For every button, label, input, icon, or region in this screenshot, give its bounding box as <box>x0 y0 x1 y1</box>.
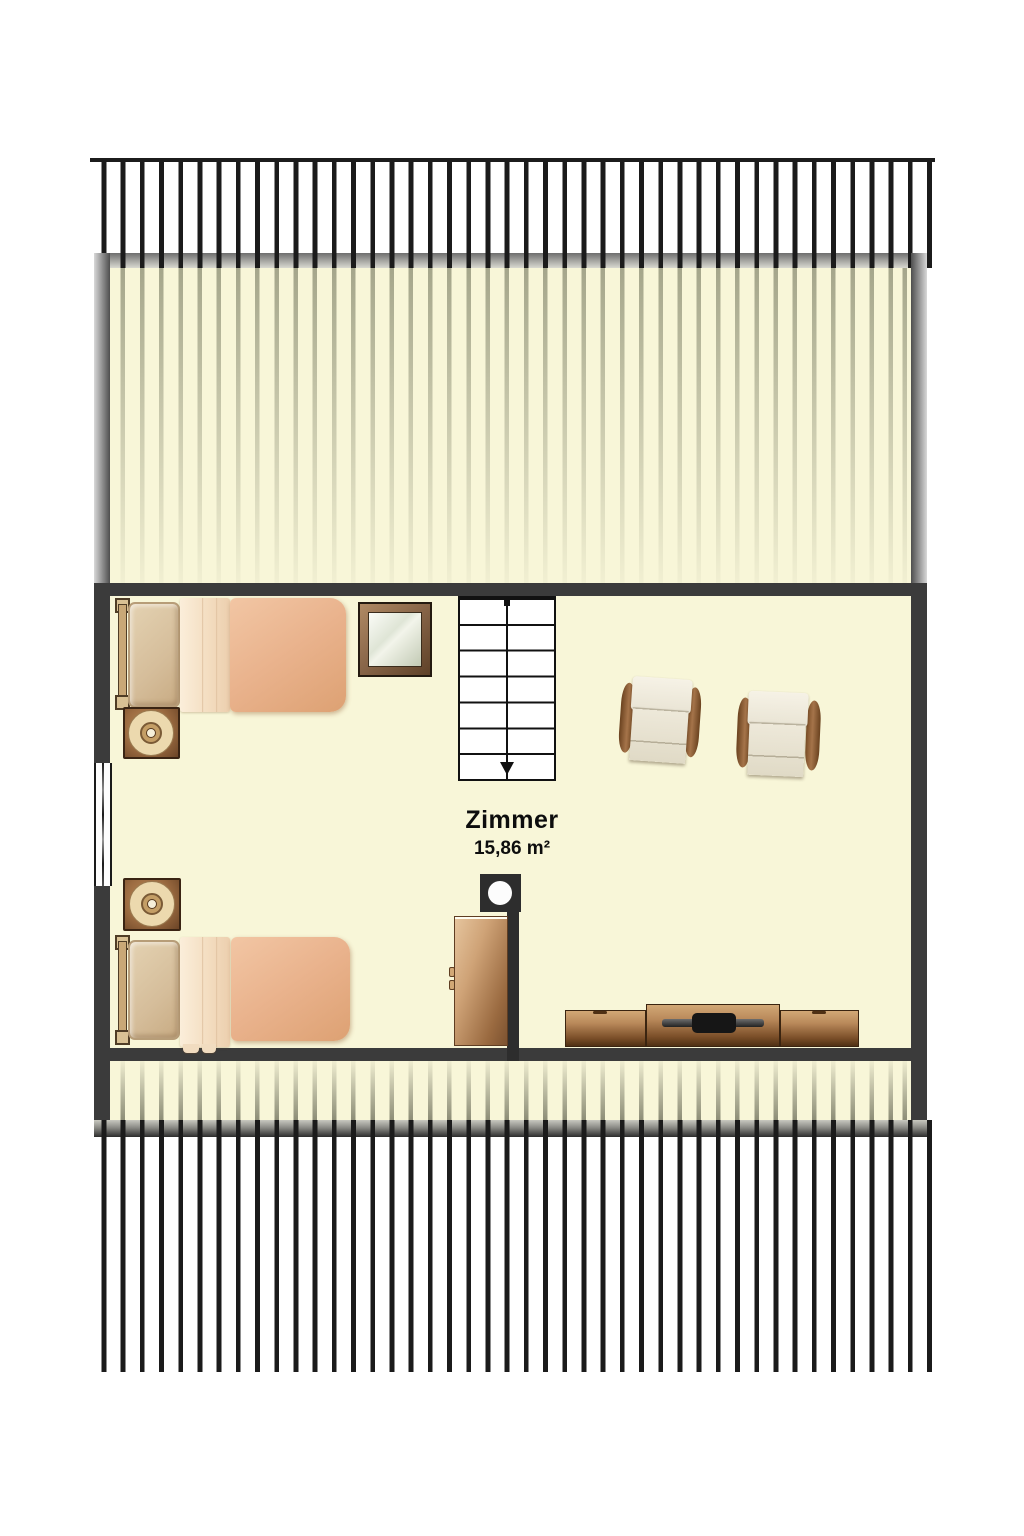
bed-bottom-duvet <box>231 937 350 1041</box>
tv-base <box>692 1013 736 1033</box>
sheet-tail <box>202 1044 216 1053</box>
sheet-tail <box>183 1044 199 1053</box>
bed-top-duvet <box>230 598 346 712</box>
sideboard-right <box>780 1010 859 1047</box>
stair-arrow-start <box>504 598 510 606</box>
gable-wall-right-top <box>911 253 927 583</box>
bed-bottom-headboard <box>118 941 127 1037</box>
wall-top <box>94 583 927 596</box>
roof-rafters-bottom <box>90 1120 935 1372</box>
room-area: 15,86 m² <box>422 838 602 860</box>
wall-mirror <box>358 602 432 677</box>
roof-window <box>94 763 112 886</box>
interior-wall-stub <box>507 912 519 1061</box>
room-name: Zimmer <box>422 806 602 835</box>
sideboard-left <box>565 1010 646 1047</box>
chimney-flue-icon <box>488 881 512 905</box>
bed-bottom-sheet <box>180 937 230 1047</box>
armchair-right <box>735 690 822 778</box>
staircase <box>458 596 556 781</box>
room-label: Zimmer 15,86 m² <box>422 806 602 860</box>
gable-wall-left-top <box>94 253 110 583</box>
roof-slope-top <box>110 268 911 583</box>
wardrobe-handle <box>449 967 455 977</box>
mirror-glass <box>368 612 422 667</box>
wardrobe <box>454 916 508 1046</box>
bed-top-headboard <box>118 604 127 704</box>
bed-top-sheet <box>180 598 230 712</box>
bed-bottom-pillow <box>128 940 180 1040</box>
armchair-seat <box>747 722 805 777</box>
floor-plan: Zimmer 15,86 m² <box>90 158 935 1372</box>
roof-slope-bottom <box>110 1061 911 1120</box>
bed-top-pillow <box>128 602 180 708</box>
sideboard-handle <box>593 1011 607 1014</box>
wardrobe-handle <box>449 980 455 990</box>
roof-rafters-top <box>90 162 935 268</box>
lamp-top <box>128 710 174 756</box>
lamp-bottom <box>129 881 175 927</box>
sideboard-handle <box>812 1011 826 1014</box>
armchair-left <box>617 675 703 764</box>
armchair-seat <box>629 707 689 764</box>
tv-sideboard <box>565 1004 859 1047</box>
